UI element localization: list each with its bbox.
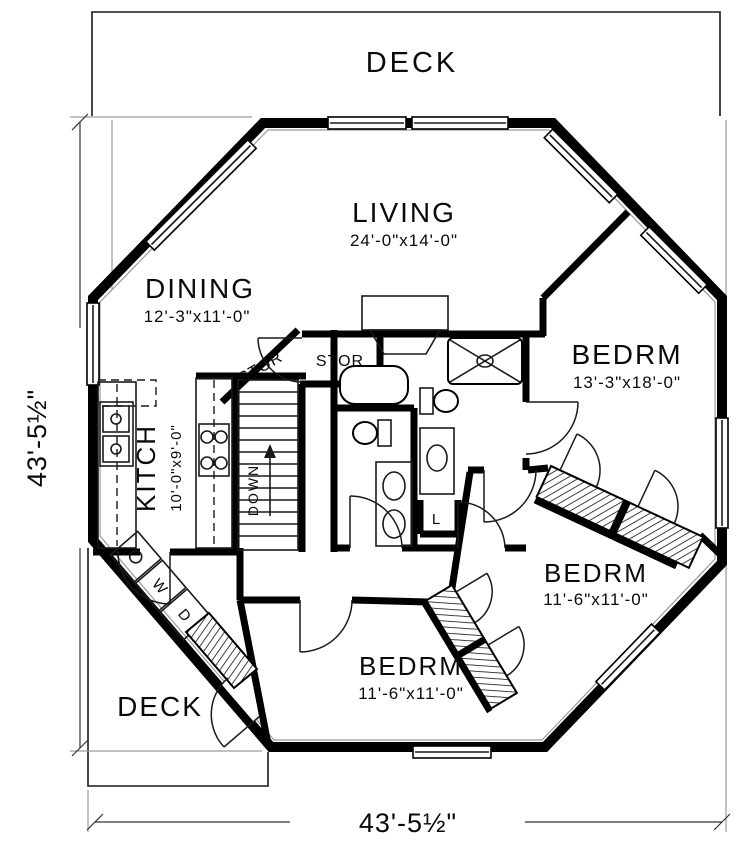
door-bedroom-bottom <box>300 600 352 652</box>
toilet-2 <box>353 420 391 446</box>
deck-top-label: DECK <box>366 47 459 79</box>
living-label: LIVING <box>352 197 456 228</box>
dining-label: DINING <box>145 273 255 304</box>
window-bottom-wall <box>413 746 491 758</box>
window-top-1 <box>328 117 406 129</box>
vanity-1 <box>376 462 412 546</box>
bedroom-mid-dims: 11'-6"x11'-0" <box>543 590 649 609</box>
window-se-diagonal <box>596 624 660 690</box>
window-ne-diagonal-upper <box>544 129 618 203</box>
door-bedroom-mid <box>484 470 536 522</box>
shower <box>448 338 522 384</box>
stor-closet-label: STOR <box>316 353 364 370</box>
dimension-left: 43'-5½" <box>22 114 88 756</box>
dining-dims: 12'-3"x11'-0" <box>144 307 251 326</box>
window-ne-diagonal-lower <box>641 227 707 293</box>
master-closet <box>534 430 720 574</box>
living-dims: 24'-0"x14'-0" <box>350 231 458 250</box>
window-right-wall <box>716 418 728 528</box>
window-left-wall <box>87 303 99 385</box>
stairs-down-label: DOWN <box>245 464 261 516</box>
floor-plan-drawing: W D 43'-5½" <box>0 0 736 846</box>
linen-closet-label: L <box>432 511 440 528</box>
floor-plan-page: W D 43'-5½" <box>0 0 736 846</box>
bedroom-master-dims: 13'-3"x18'-0" <box>573 373 681 392</box>
deck-bottom-label: DECK <box>117 691 203 722</box>
kitchen-label: KITCH <box>131 424 161 512</box>
fireplace <box>362 296 448 354</box>
washer-label: W <box>148 576 171 598</box>
door-bedroom-master <box>526 402 578 454</box>
dimension-left-label: 43'-5½" <box>22 389 52 487</box>
bathtub <box>340 366 408 404</box>
dryer-label: D <box>174 606 194 625</box>
bedroom-bottom-label: BEDRM <box>359 651 463 681</box>
bedroom-bottom-dims: 11'-6"x11'-0" <box>358 684 464 703</box>
vanity-2 <box>420 428 454 494</box>
window-top-2 <box>412 117 508 129</box>
dimension-bottom-label: 43'-5½" <box>359 808 457 838</box>
dimension-bottom: 43'-5½" <box>87 808 730 838</box>
stairs-arrow-head <box>264 444 276 458</box>
window-nw-diagonal <box>146 140 256 250</box>
toilet-1 <box>420 388 458 414</box>
bedroom-master-label: BEDRM <box>571 339 682 370</box>
kitchen-fixtures <box>98 378 232 548</box>
kitchen-dims: 10'-0"x9'-0" <box>168 424 185 512</box>
bedroom-mid-label: BEDRM <box>544 558 648 588</box>
